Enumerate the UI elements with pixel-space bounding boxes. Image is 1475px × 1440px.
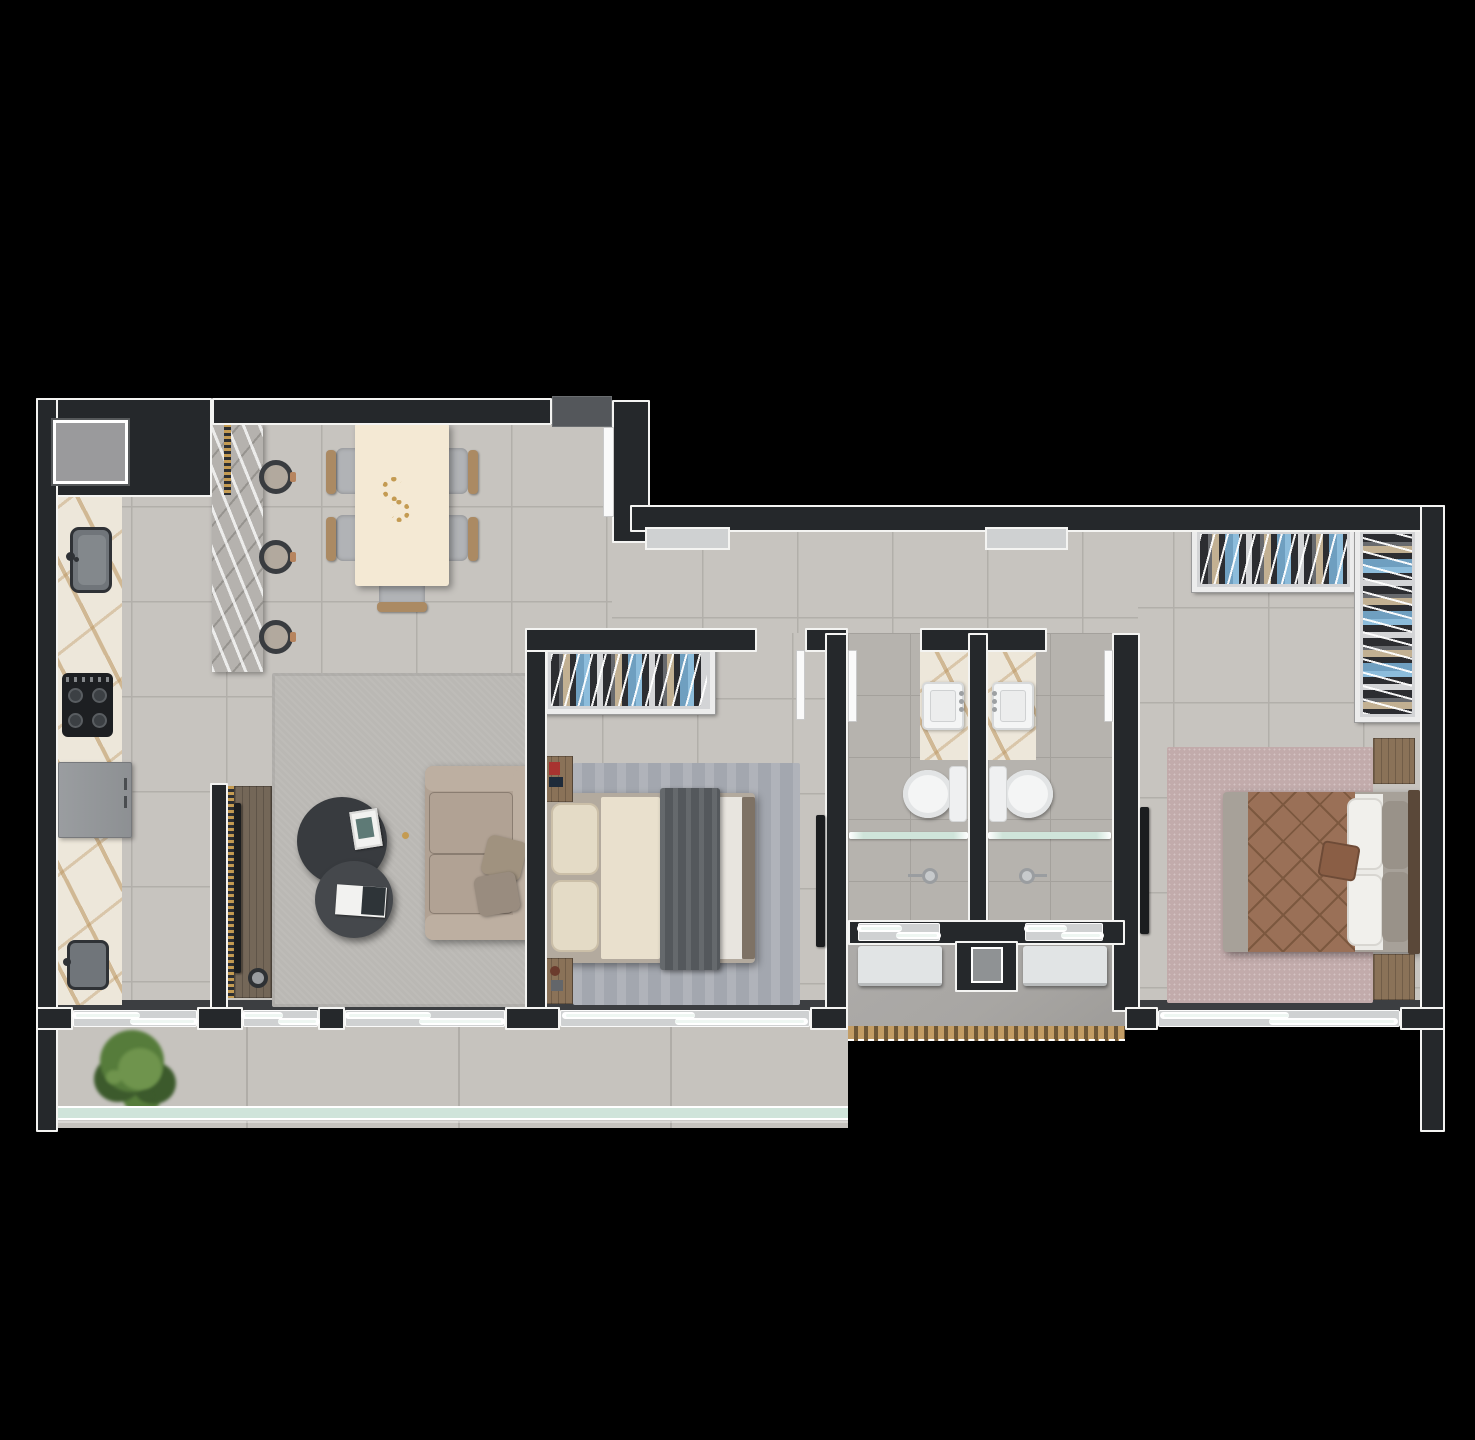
gold-coaster: [402, 832, 409, 839]
utility-shaft: [53, 420, 128, 484]
shower-glass-partition: [988, 832, 1111, 839]
bedroom-1-balcony-window: [560, 1010, 810, 1027]
shower-arm: [908, 874, 922, 877]
bed-2-headboard: [1408, 790, 1420, 954]
living-balcony-door: [243, 1010, 318, 1027]
bedroom-2-window: [1158, 1010, 1400, 1027]
wall-top: [212, 398, 552, 425]
dining-chair-back: [326, 517, 336, 561]
nightstand-decor-brown: [550, 966, 560, 976]
bar-stool: [259, 620, 293, 654]
wall-pier: [505, 1007, 560, 1030]
service-niche-box: [971, 947, 1003, 983]
burner: [92, 688, 107, 703]
kitchen-balcony-window: [73, 1010, 197, 1027]
dining-chair-back: [326, 450, 336, 494]
wardrobe-bedroom-2-top: [1192, 526, 1355, 592]
wall-bathroom-1-left: [825, 633, 848, 1012]
ac-condenser-unit: [858, 946, 942, 986]
sofa-pillow: [473, 871, 521, 918]
shower-head: [922, 868, 938, 884]
faucet-dots: [959, 691, 964, 696]
bathroom-1-toilet: [903, 770, 953, 818]
bed-2-cushion: [1317, 840, 1361, 882]
cooktop-knobs: [66, 677, 109, 682]
bathroom-2-sink: [992, 682, 1034, 730]
bathroom-2-toilet-tank: [989, 766, 1007, 822]
shower-arm: [1033, 874, 1047, 877]
nightstand: [1373, 954, 1415, 1000]
burner: [92, 713, 107, 728]
tv-bedroom-2: [1140, 807, 1149, 934]
speaker: [248, 968, 268, 988]
bathroom-1-sink: [922, 682, 964, 730]
wardrobe-bedroom-2-side: [1355, 526, 1420, 722]
wall-living-kitchen-divider: [210, 783, 228, 1009]
balcony-plant-foliage: [118, 1048, 162, 1090]
faucet-dots: [992, 691, 997, 696]
bed-2-pillow-white: [1347, 874, 1383, 946]
wardrobe-bedroom-1: [543, 646, 715, 714]
bedroom-1-door-leaf: [796, 650, 805, 720]
wall-pier: [318, 1007, 345, 1030]
floor-plan-canvas: [0, 0, 1475, 1440]
wall-between-bathrooms: [968, 633, 988, 945]
tv-bedroom-1: [816, 815, 825, 947]
bed-1-pillow: [551, 803, 599, 875]
bathroom-1-door-leaf: [848, 650, 857, 722]
corridor-window-sill: [985, 527, 1068, 550]
bathroom-2-window: [1025, 923, 1103, 941]
cooktop: [62, 673, 113, 737]
kitchen-faucet: [66, 552, 75, 561]
wall-pier: [197, 1007, 243, 1030]
corridor-window-sill: [645, 527, 730, 550]
island-gold-runner: [224, 424, 231, 495]
burner: [68, 713, 83, 728]
entry-landing: [552, 396, 612, 427]
bar-stool: [259, 540, 293, 574]
ac-condenser-unit: [1023, 946, 1107, 986]
hanging-clothes: [1200, 534, 1347, 584]
bed-1-sheet: [601, 797, 660, 959]
magazine-cover: [361, 886, 386, 916]
wall-pier: [36, 1007, 73, 1030]
bed-2-pillow-gray: [1382, 801, 1410, 869]
bathroom-2-toilet: [1003, 770, 1053, 818]
bar-stool: [259, 460, 293, 494]
dining-chair-back: [377, 602, 427, 612]
bed-1-pillow: [551, 880, 599, 952]
prep-sink-faucet: [63, 958, 71, 966]
bathroom-1-toilet-tank: [949, 766, 967, 822]
nightstand-decor-red: [549, 762, 560, 775]
bed-1-blanket: [660, 788, 720, 970]
table-centerpiece: [382, 477, 406, 501]
dining-chair-back: [468, 517, 478, 561]
hanging-clothes: [551, 654, 707, 706]
wall-pier: [1400, 1007, 1445, 1030]
bathroom-1-window: [858, 923, 940, 941]
living-balcony-door: [345, 1010, 505, 1027]
kitchen-sink-basin: [78, 535, 106, 585]
wall-right-outer: [1420, 505, 1445, 1132]
wall-pier: [1125, 1007, 1158, 1030]
prep-sink: [67, 940, 109, 990]
nightstand-decor-navy: [549, 777, 563, 787]
refrigerator-handles: [124, 778, 127, 790]
bed-1-frame-edge: [742, 797, 755, 959]
wall-bedroom-1-top: [525, 628, 757, 652]
wall-bedroom-1-left: [525, 633, 547, 1012]
wall-pier: [810, 1007, 848, 1030]
kitchen-island: [212, 423, 263, 672]
entry-door-leaf: [603, 427, 614, 517]
bed-1-fold: [720, 797, 742, 959]
shower-glass-partition: [849, 832, 968, 839]
wood-deck-edge: [848, 1026, 1125, 1041]
burner: [68, 688, 83, 703]
wall-bedroom-2-left: [1112, 633, 1140, 1012]
bathroom-2-door-leaf: [1104, 650, 1113, 722]
bed-2-pillow-gray: [1382, 872, 1410, 942]
refrigerator: [58, 762, 132, 838]
table-centerpiece: [388, 500, 410, 522]
balcony-glass-railing: [50, 1106, 848, 1120]
book-page-image: [356, 817, 375, 839]
hanging-clothes: [1363, 534, 1412, 714]
nightstand: [1373, 738, 1415, 784]
tv-living: [234, 803, 241, 973]
nightstand-decor-gray: [551, 980, 563, 991]
dining-chair-back: [468, 450, 478, 494]
